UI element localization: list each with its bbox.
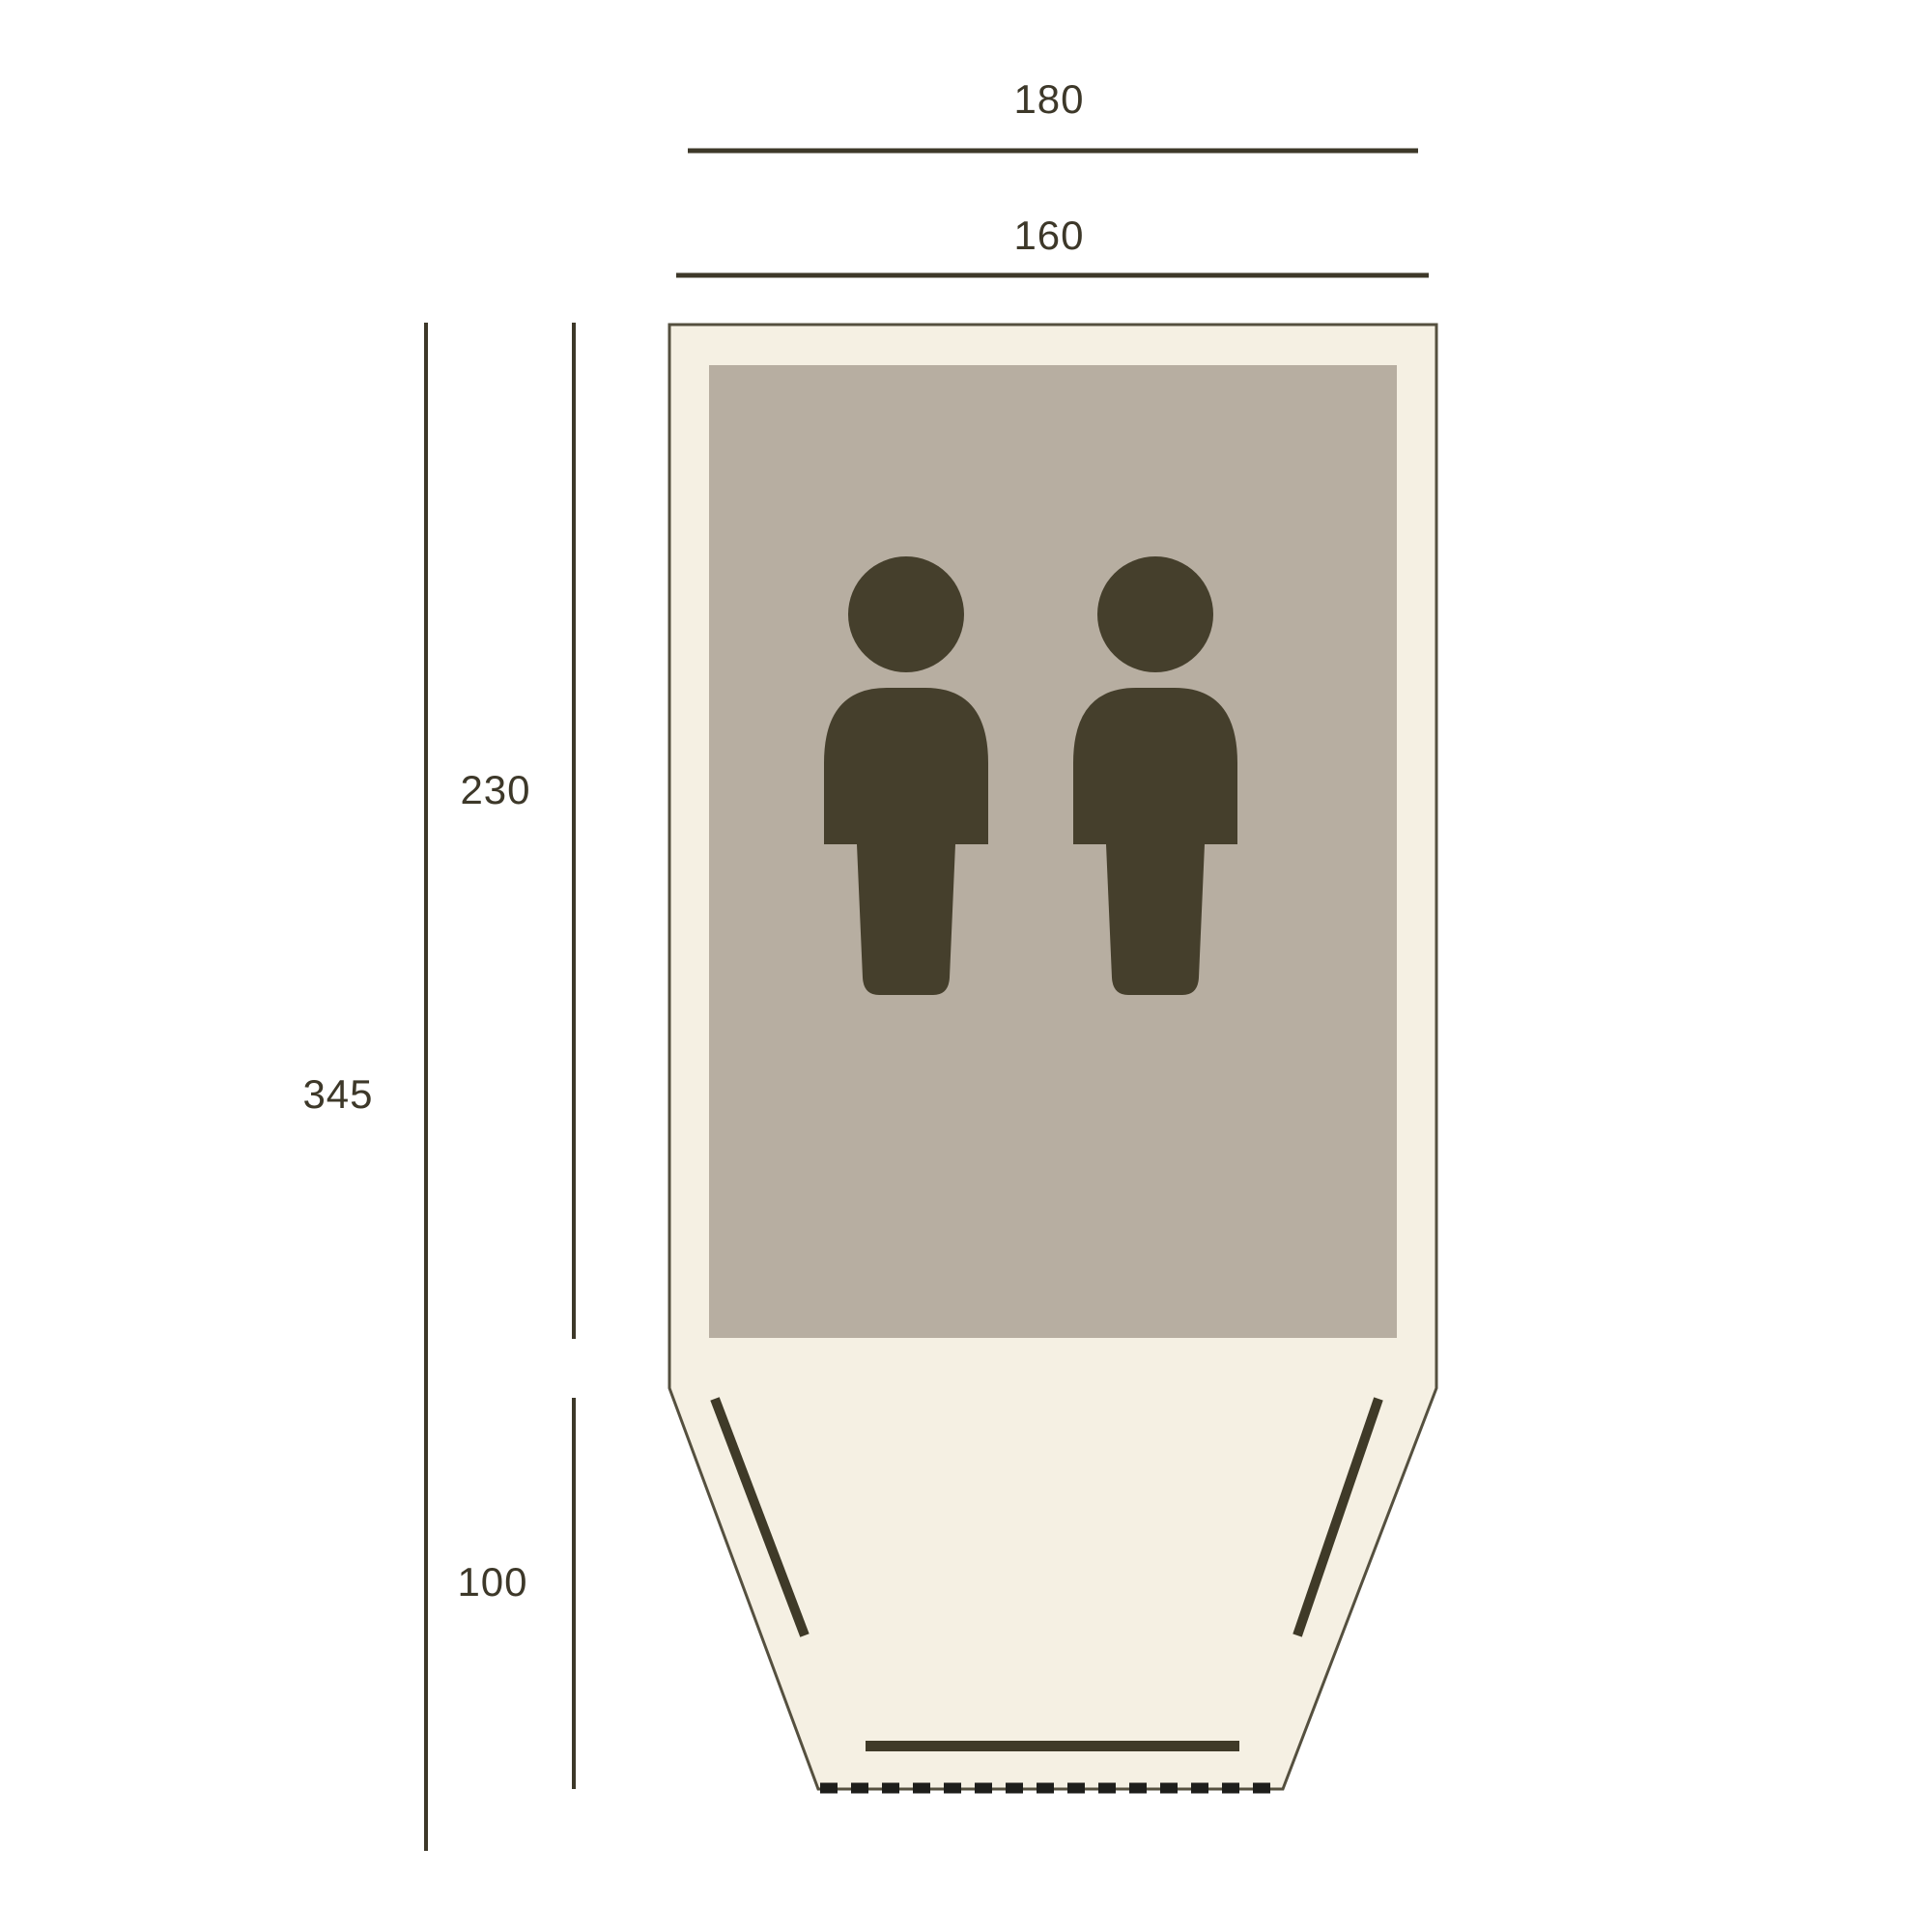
tent-floorplan-canvas: 180 160 345 230 100: [0, 0, 1932, 1932]
dim-label-porch-length: 100: [457, 1559, 527, 1605]
dim-label-inner-length: 230: [460, 767, 530, 812]
dim-label-top-width: 180: [1013, 76, 1084, 122]
sleeping-area-mat: [709, 365, 1397, 1338]
person-head: [848, 556, 964, 672]
entrance-threshold-bar: [866, 1741, 1239, 1751]
dim-label-total-length: 345: [302, 1071, 373, 1117]
tent-dimensions-diagram: 180 160 345 230 100: [0, 0, 1932, 1932]
dim-label-inner-width: 160: [1013, 213, 1084, 258]
person-head: [1097, 556, 1213, 672]
